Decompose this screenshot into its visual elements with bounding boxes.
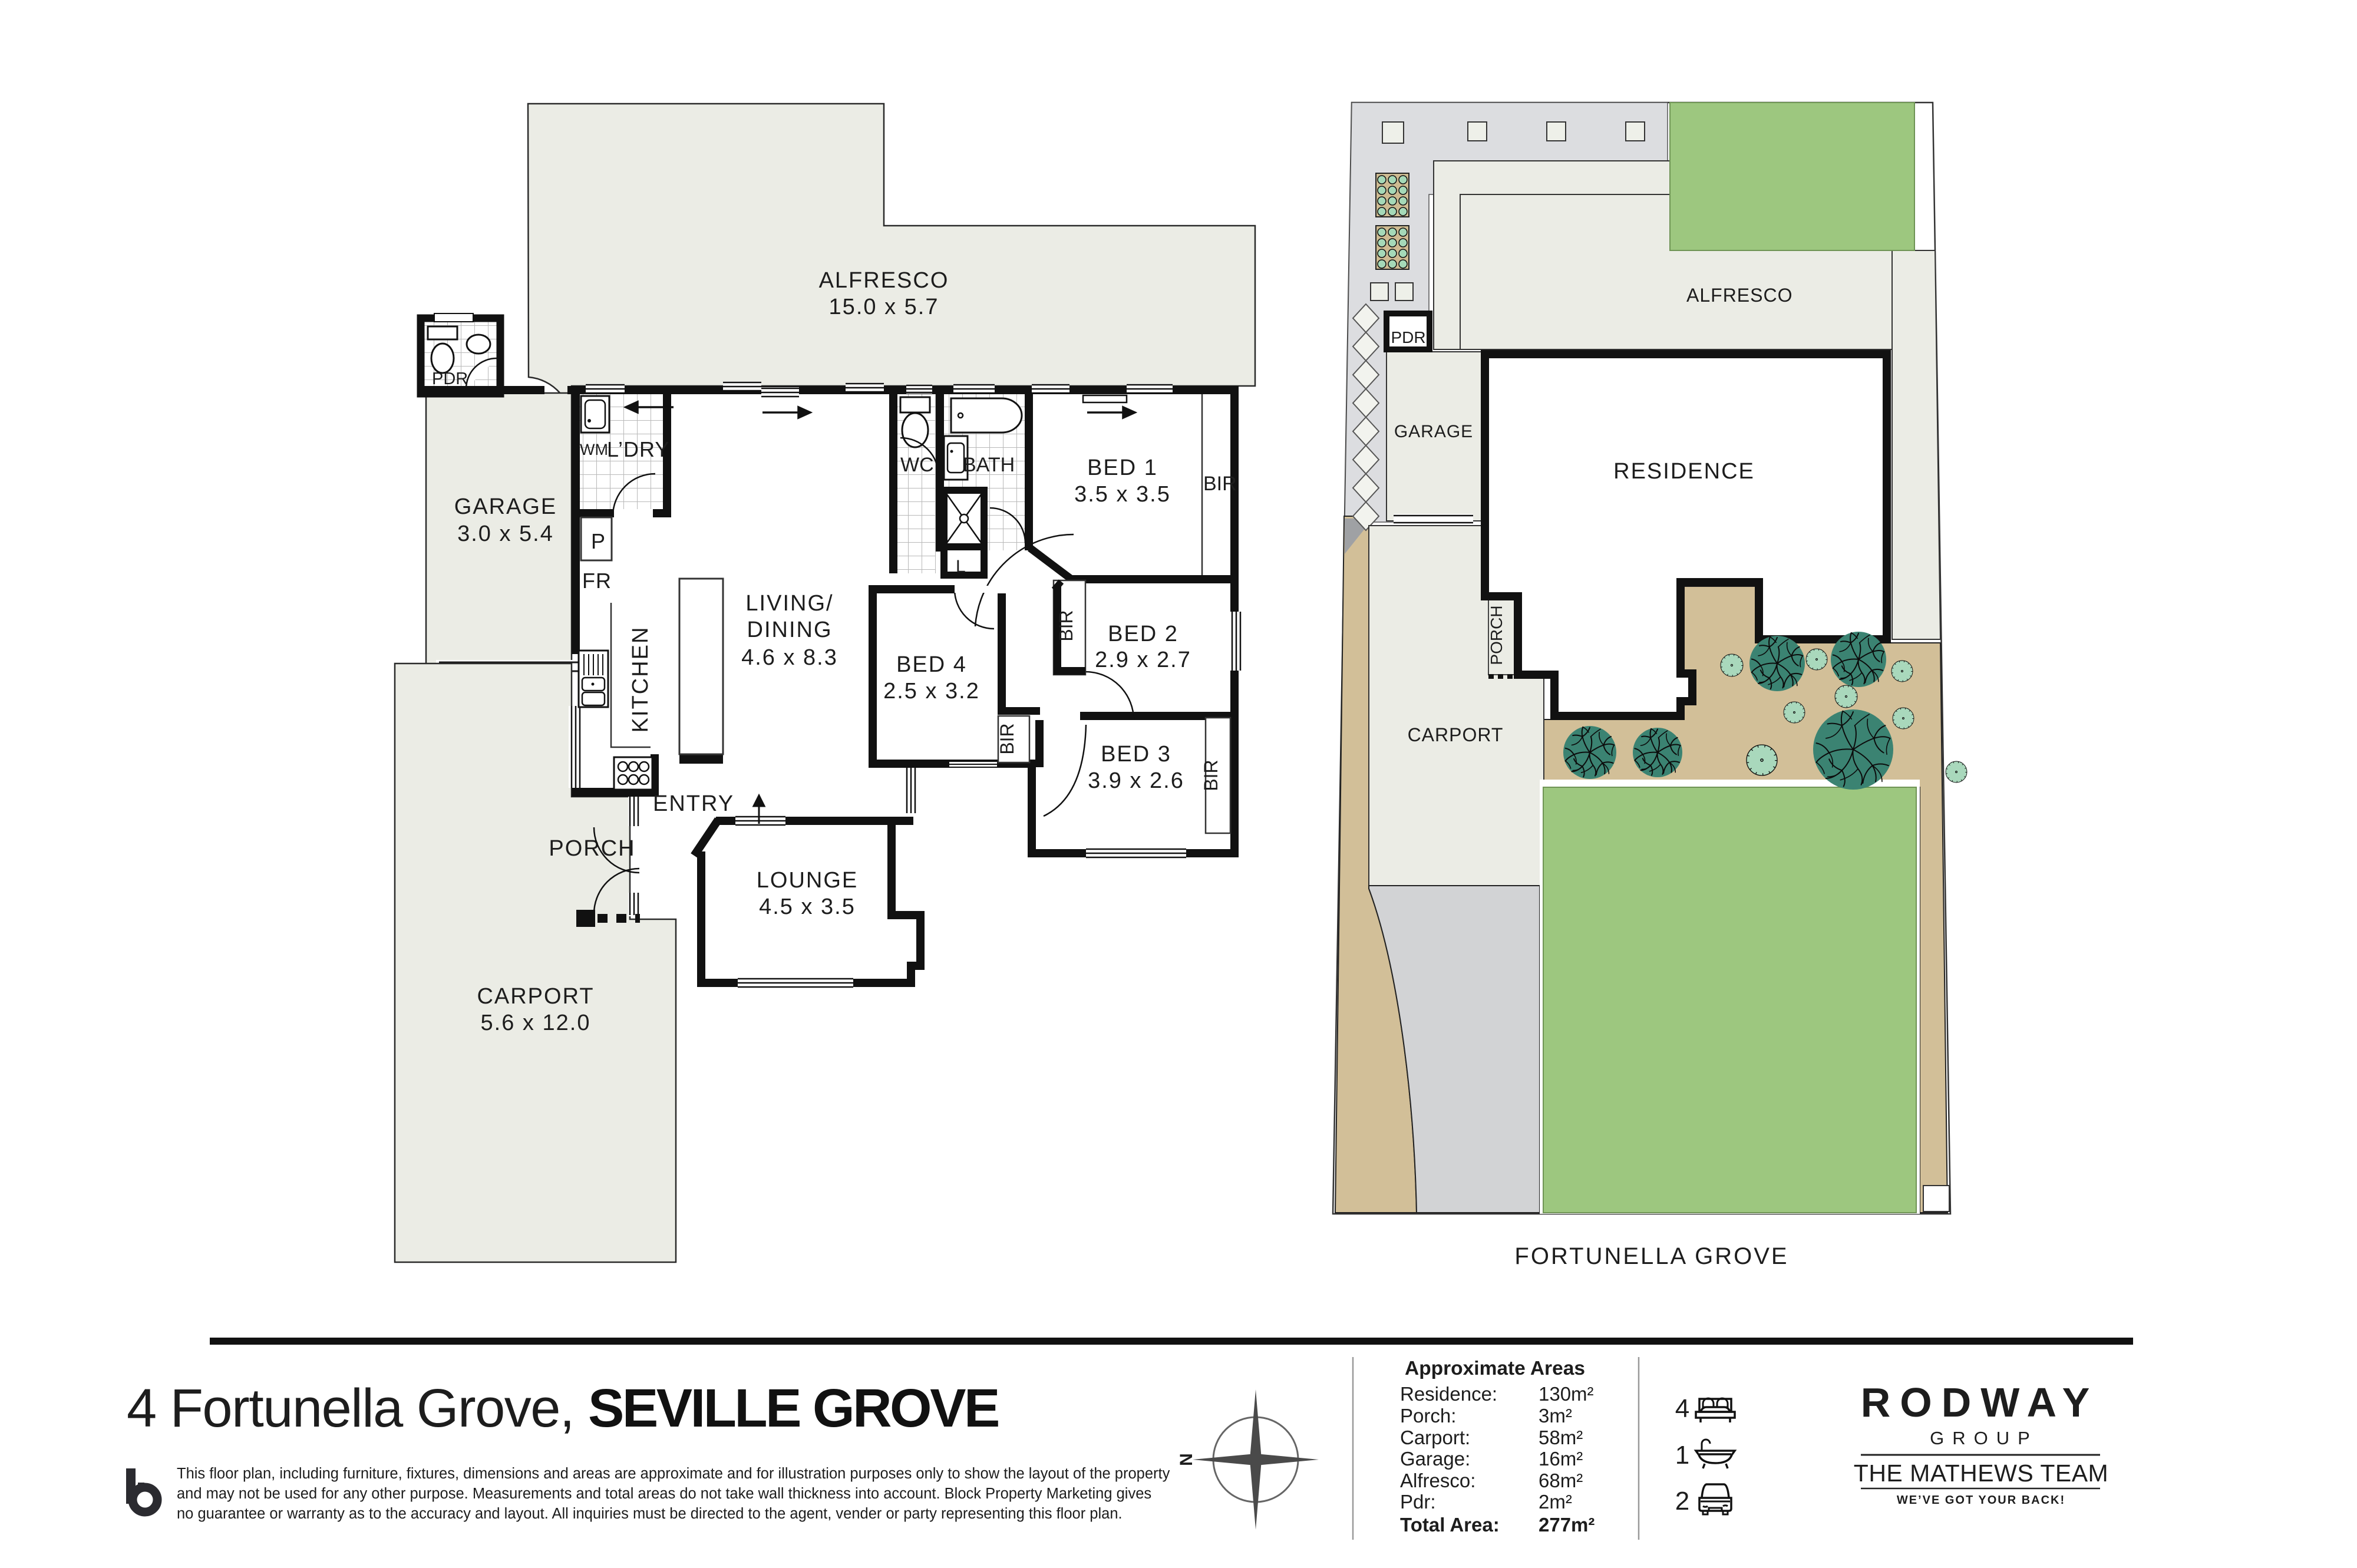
svg-text:WC: WC	[900, 454, 934, 476]
svg-text:N: N	[1177, 1453, 1196, 1466]
svg-text:BIR: BIR	[1200, 760, 1222, 791]
svg-text:Total Area:: Total Area:	[1400, 1514, 1500, 1536]
svg-text:Alfresco:: Alfresco:	[1400, 1470, 1475, 1491]
svg-text:ALFRESCO: ALFRESCO	[1686, 285, 1792, 306]
svg-text:GROUP: GROUP	[1930, 1428, 2038, 1448]
svg-text:3m²: 3m²	[1539, 1405, 1572, 1427]
svg-text:2.5 x 3.2: 2.5 x 3.2	[883, 679, 980, 704]
svg-text:1: 1	[1675, 1441, 1689, 1470]
svg-text:BIR: BIR	[1203, 473, 1237, 495]
svg-text:277m²: 277m²	[1539, 1514, 1595, 1536]
svg-text:2.9 x 2.7: 2.9 x 2.7	[1095, 648, 1191, 672]
svg-text:4.6 x 8.3: 4.6 x 8.3	[741, 645, 838, 670]
svg-text:Garage:: Garage:	[1400, 1448, 1470, 1470]
svg-text:3.5 x 3.5: 3.5 x 3.5	[1074, 482, 1171, 507]
svg-text:and may not be used for any ot: and may not be used for any other purpos…	[177, 1486, 1151, 1502]
svg-text:BIR: BIR	[996, 723, 1018, 754]
svg-text:DINING: DINING	[747, 618, 833, 642]
svg-text:P: P	[591, 529, 606, 553]
svg-text:Porch:: Porch:	[1400, 1405, 1456, 1427]
svg-text:GARAGE: GARAGE	[1394, 422, 1473, 441]
svg-text:BED 3: BED 3	[1101, 742, 1171, 767]
svg-text:68m²: 68m²	[1539, 1470, 1583, 1491]
svg-text:THE MATHEWS TEAM: THE MATHEWS TEAM	[1854, 1460, 2108, 1487]
svg-text:BIR: BIR	[1055, 610, 1077, 641]
svg-text:Approximate Areas: Approximate Areas	[1405, 1358, 1585, 1379]
svg-text:L: L	[956, 557, 966, 576]
svg-text:2: 2	[1675, 1487, 1689, 1516]
svg-text:BATH: BATH	[963, 454, 1015, 476]
svg-text:Pdr:: Pdr:	[1400, 1491, 1436, 1513]
svg-text:ENTRY: ENTRY	[653, 791, 734, 816]
svg-text:3.9 x 2.6: 3.9 x 2.6	[1088, 768, 1184, 793]
svg-text:RESIDENCE: RESIDENCE	[1613, 459, 1755, 484]
svg-text:WE’VE GOT YOUR BACK!: WE’VE GOT YOUR BACK!	[1897, 1494, 2065, 1507]
svg-text:PORCH: PORCH	[549, 836, 635, 861]
svg-text:RODWAY: RODWAY	[1861, 1379, 2099, 1425]
svg-text:PDR: PDR	[432, 369, 468, 388]
svg-text:ALFRESCO: ALFRESCO	[819, 268, 949, 293]
svg-text:5.6 x 12.0: 5.6 x 12.0	[481, 1011, 591, 1035]
svg-text:BED 2: BED 2	[1108, 622, 1178, 646]
svg-text:LOUNGE: LOUNGE	[757, 868, 858, 893]
svg-text:Carport:: Carport:	[1400, 1427, 1470, 1448]
svg-text:4.5 x 3.5: 4.5 x 3.5	[759, 894, 856, 919]
svg-text:GARAGE: GARAGE	[454, 494, 557, 519]
svg-text:CARPORT: CARPORT	[1408, 724, 1504, 745]
svg-text:3.0 x 5.4: 3.0 x 5.4	[457, 521, 554, 546]
svg-text:15.0 x 5.7: 15.0 x 5.7	[829, 295, 939, 319]
svg-text:FORTUNELLA GROVE: FORTUNELLA GROVE	[1514, 1243, 1788, 1269]
svg-text:4 Fortunella Grove, SEVILLE GR: 4 Fortunella Grove, SEVILLE GROVE	[127, 1378, 998, 1438]
svg-text:4: 4	[1675, 1394, 1689, 1423]
svg-text:PDR: PDR	[1391, 328, 1425, 346]
svg-text:FR: FR	[582, 569, 612, 593]
svg-text:16m²: 16m²	[1539, 1448, 1583, 1470]
svg-text:CARPORT: CARPORT	[477, 984, 594, 1009]
svg-text:no guarantee or warranty as to: no guarantee or warranty as to the accur…	[177, 1506, 1123, 1522]
svg-text:L’DRY: L’DRY	[607, 437, 669, 461]
svg-text:WM: WM	[580, 441, 608, 458]
svg-text:KITCHEN: KITCHEN	[628, 626, 653, 733]
svg-text:This floor plan, including fur: This floor plan, including furniture, fi…	[177, 1465, 1170, 1482]
svg-text:BED 1: BED 1	[1087, 455, 1158, 480]
svg-text:PORCH: PORCH	[1487, 605, 1506, 665]
svg-text:58m²: 58m²	[1539, 1427, 1583, 1448]
svg-text:Residence:: Residence:	[1400, 1383, 1497, 1405]
svg-text:BED 4: BED 4	[896, 652, 967, 677]
svg-text:2m²: 2m²	[1539, 1491, 1572, 1513]
svg-text:130m²: 130m²	[1539, 1383, 1594, 1405]
svg-text:LIVING/: LIVING/	[745, 591, 833, 616]
